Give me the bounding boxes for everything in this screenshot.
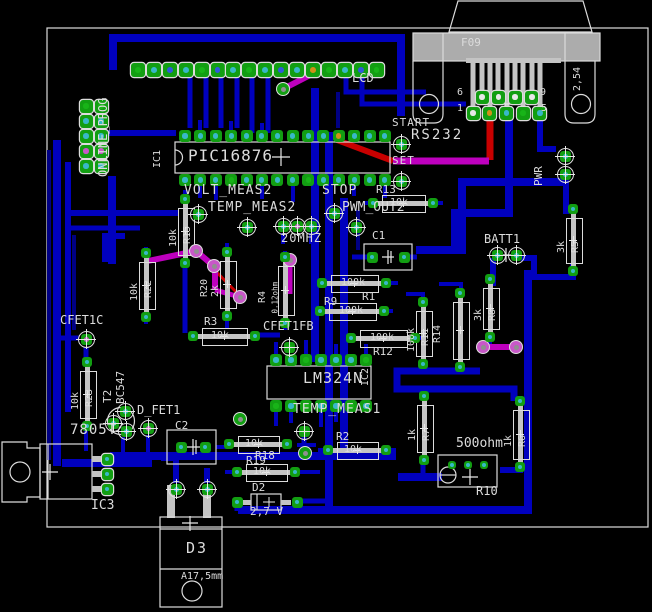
- resistor-R4-ref: R4: [258, 291, 268, 303]
- testpoint-BATT1-1[interactable]: [487, 245, 507, 265]
- R11-pad-1-center: [421, 300, 425, 304]
- R5-pad-1-center: [571, 207, 575, 211]
- pic-top-pad-3-center: [213, 133, 218, 138]
- lcd-header-pad-11[interactable]: [290, 63, 304, 77]
- lcd-header-pad-2-center: [151, 67, 157, 73]
- online-prog-col1-pad-5-center: [83, 163, 88, 168]
- resistor-R4-gfx: [285, 286, 286, 294]
- R12-pad-1[interactable]: [346, 333, 356, 343]
- R4-pad-1-center: [283, 255, 287, 259]
- resistor-R14-gfx: [453, 302, 470, 360]
- silkscreen-label-CFET1FB: CFET1FB: [263, 320, 314, 332]
- db9-bottom-row-pad-4-center: [520, 110, 525, 115]
- online-prog-col1-pad-4[interactable]: [80, 145, 93, 158]
- R2-pad-1[interactable]: [323, 445, 333, 455]
- via-hole: [303, 451, 308, 456]
- c1-pads-pad-2[interactable]: [399, 252, 410, 263]
- testpoint-D3-1[interactable]: [166, 479, 186, 499]
- db9-top-row-pad-4-center: [529, 94, 534, 99]
- resistor-R4-gfx: [278, 266, 295, 316]
- pic-top-pad-14[interactable]: [379, 130, 391, 142]
- R22-pad-1[interactable]: [141, 248, 151, 258]
- pic-top-pad-12-center: [352, 133, 357, 138]
- resistor-R9-ref: R9: [324, 296, 337, 307]
- pic-top-pad-3[interactable]: [210, 130, 222, 142]
- R15-pad-2-center: [183, 261, 187, 265]
- c1-pads-pad-2-center: [402, 255, 407, 260]
- R5-pad-1[interactable]: [568, 204, 578, 214]
- testpoint-D_FET1[interactable]: [138, 418, 158, 438]
- R18-pad-1[interactable]: [224, 439, 234, 449]
- resistor-R3-ref: R3: [204, 316, 217, 327]
- pic-bottom-pad-8[interactable]: [287, 174, 299, 186]
- lm324-top-pad-3[interactable]: [300, 354, 312, 366]
- via-8[interactable]: [234, 413, 246, 425]
- pic-top-pad-1-center: [182, 133, 187, 138]
- resistor-R4-value: 0.12ohm: [271, 282, 279, 314]
- resistor-R11-ref: R11: [421, 328, 431, 346]
- silkscreen-label-VOLT-MEAS2: VOLT_MEAS2: [184, 184, 272, 197]
- pic-bottom-pad-3-center: [213, 177, 218, 182]
- testpoint-TEMP_MEAS1[interactable]: [294, 421, 314, 441]
- R11-pad-2[interactable]: [418, 359, 428, 369]
- R19-pad-1-center: [235, 470, 239, 474]
- pic-top-pad-2-center: [198, 133, 203, 138]
- d2-pads-pad-1[interactable]: [232, 497, 243, 508]
- pic-bottom-pad-1-center: [182, 177, 187, 182]
- pic-top-pad-6-center: [259, 133, 264, 138]
- pic-top-pad-9-center: [306, 133, 311, 138]
- ic3-pads-pad-2-center: [105, 472, 110, 477]
- pic-top-pad-8-center: [290, 133, 295, 138]
- db9-top-row-pad-4[interactable]: [525, 91, 538, 104]
- pic-bottom-pad-8-center: [290, 177, 295, 182]
- R19-pad-1[interactable]: [232, 467, 242, 477]
- pcb-canvas[interactable]: 10kR1510kR222kR200.12ohmR410kR23100kR11R…: [0, 0, 652, 612]
- R22-pad-1-center: [144, 251, 148, 255]
- pic-top-pad-14-center: [382, 133, 387, 138]
- d2-pads-pad-2[interactable]: [292, 497, 303, 508]
- testpoint-TEMP_MEAS2[interactable]: [237, 217, 257, 237]
- R11-pad-1[interactable]: [418, 297, 428, 307]
- resistor-R7-value: 1k: [408, 429, 418, 441]
- R14-pad-2[interactable]: [455, 362, 465, 372]
- resistor-R8-ref: R8: [488, 309, 498, 321]
- pic-top-pad-10-center: [321, 133, 326, 138]
- db9-bottom-row-pad-2[interactable]: [483, 107, 496, 120]
- via-3[interactable]: [208, 260, 220, 272]
- lm324-top-pad-4[interactable]: [315, 354, 327, 366]
- silkscreen-label-STOP: STOP: [322, 184, 357, 197]
- lcd-header-pad-14-center: [342, 67, 348, 73]
- pic-bottom-pad-14-center: [382, 177, 387, 182]
- via-hole: [238, 417, 243, 422]
- c2-pads-pad-2[interactable]: [200, 442, 211, 453]
- silkscreen-label-F09: F09: [461, 37, 481, 48]
- online-prog-col1-pad-5[interactable]: [80, 160, 93, 173]
- db9-top-row-pad-3-center: [512, 94, 517, 99]
- R14-pad-2-center: [458, 365, 462, 369]
- db9-top-row-pad-1[interactable]: [476, 91, 489, 104]
- online-prog-col1-pad-1[interactable]: [80, 100, 93, 113]
- via-hole: [212, 264, 217, 269]
- R7-pad-1[interactable]: [419, 391, 429, 401]
- resistor-R8-value: 3k: [474, 309, 484, 321]
- resistor-R2-value: 10k: [344, 445, 362, 455]
- online-prog-col1-pad-3[interactable]: [80, 130, 93, 143]
- silkscreen-label-6: 6: [457, 88, 463, 98]
- pic-top-pad-11-center: [336, 133, 341, 138]
- testpoint-T2-1-gfx: [125, 401, 126, 421]
- r10-pads-pad-1[interactable]: [448, 461, 456, 469]
- silkscreen-label-BATT1: BATT1: [484, 233, 520, 245]
- resistor-R20-gfx: [227, 280, 228, 288]
- silkscreen-label-PWM-OUT2: PWM_OUT2: [342, 201, 405, 214]
- db9-bottom-row-pad-3[interactable]: [500, 107, 513, 120]
- R9-pad-2-center: [382, 309, 386, 313]
- silkscreen-label-C1: C1: [372, 230, 385, 241]
- silkscreen-label-PIC16876: PIC16876: [188, 148, 273, 164]
- ic3-pads-pad-3[interactable]: [102, 484, 113, 495]
- R22-pad-2-center: [144, 315, 148, 319]
- R6-pad-1[interactable]: [515, 396, 525, 406]
- testpoint-VOLT_MEAS2-gfx: [198, 204, 199, 224]
- lm324-top-pad-2-center: [288, 357, 293, 362]
- R7-pad-1-center: [422, 394, 426, 398]
- silkscreen-label-LM324N: LM324N: [303, 371, 363, 386]
- R15-pad-2[interactable]: [180, 258, 190, 268]
- db9-top-row-pad-2[interactable]: [492, 91, 505, 104]
- R18-pad-2[interactable]: [282, 439, 292, 449]
- lm324-top-pad-1-center: [273, 357, 278, 362]
- R2-pad-2-center: [384, 448, 388, 452]
- silkscreen-label-D3: D3: [186, 541, 208, 556]
- pic-bottom-pad-4-center: [229, 177, 234, 182]
- testpoint-PWR-2-gfx: [565, 164, 566, 184]
- testpoint-PWR-1-gfx: [565, 146, 566, 166]
- lm324-top-pad-5[interactable]: [330, 354, 342, 366]
- R5-pad-2[interactable]: [568, 266, 578, 276]
- resistor-R23-value: 10k: [71, 392, 81, 410]
- resistor-R7-ref: R7: [422, 429, 432, 441]
- R7-pad-2[interactable]: [419, 455, 429, 465]
- lcd-header-pad-13-center: [326, 67, 332, 73]
- silkscreen-label-7805T: 7805T: [70, 423, 117, 437]
- pic-top-pad-9[interactable]: [302, 130, 314, 142]
- R6-pad-2[interactable]: [515, 462, 525, 472]
- via-6[interactable]: [477, 341, 489, 353]
- lcd-header-pad-7-center: [230, 67, 236, 73]
- lcd-header-pad-9[interactable]: [258, 63, 272, 77]
- via-4[interactable]: [234, 291, 246, 303]
- pic-top-pad-7-center: [275, 133, 280, 138]
- pic-bottom-pad-10-center: [321, 177, 326, 182]
- via-hole: [514, 345, 519, 350]
- pic-bottom-pad-7[interactable]: [271, 174, 283, 186]
- lcd-header-pad-12[interactable]: [306, 63, 320, 77]
- via-hole: [481, 345, 486, 350]
- r10-pads-pad-1-center: [450, 463, 454, 467]
- resistor-R1-ref: R1: [362, 291, 375, 302]
- resistor-R1-value: 100k: [341, 278, 365, 288]
- pic-top-pad-6[interactable]: [256, 130, 268, 142]
- silkscreen-label-D-FET1: D_FET1: [137, 404, 180, 416]
- online-prog-col1-pad-2-center: [83, 118, 88, 123]
- R22-pad-2[interactable]: [141, 312, 151, 322]
- silkscreen-label-IC3: IC3: [91, 499, 114, 512]
- db9-top-row-pad-2-center: [496, 94, 501, 99]
- R13-pad-2-center: [431, 201, 435, 205]
- silkscreen-label-START: START: [392, 117, 430, 128]
- r10-pads-pad-3[interactable]: [480, 461, 488, 469]
- lcd-header-pad-1-center: [135, 67, 141, 73]
- c2-pads-pad-2-center: [203, 445, 208, 450]
- pic-top-pad-12[interactable]: [348, 130, 360, 142]
- pic-top-pad-8[interactable]: [287, 130, 299, 142]
- R8-pad-1[interactable]: [485, 274, 495, 284]
- testpoint-TEMP_MEAS1-gfx: [304, 421, 305, 441]
- via-7[interactable]: [510, 341, 522, 353]
- testpoint-T2-3-gfx: [126, 421, 127, 441]
- R11-pad-2-center: [421, 362, 425, 366]
- pic-bottom-pad-6-center: [259, 177, 264, 182]
- c2-pads-pad-1-center: [179, 445, 184, 450]
- R1-pad-2[interactable]: [381, 278, 391, 288]
- resistor-R20-gfx: [220, 261, 237, 309]
- silkscreen-label-IC1: IC1: [153, 150, 163, 168]
- silkscreen-label-T2: T2: [102, 390, 113, 403]
- resistor-R15-value: 10k: [169, 229, 179, 247]
- online-prog-col1-pad-1-center: [83, 103, 88, 108]
- lm324-top-pad-6-center: [348, 357, 353, 362]
- via-9[interactable]: [299, 447, 311, 459]
- R3-pad-2-center: [253, 334, 257, 338]
- lm324-bottom-pad-1[interactable]: [270, 400, 282, 412]
- lcd-header-pad-7[interactable]: [226, 63, 240, 77]
- R1-pad-1-center: [320, 281, 324, 285]
- pic-bottom-pad-13-center: [367, 177, 372, 182]
- lcd-header-pad-10[interactable]: [274, 63, 288, 77]
- testpoint-START[interactable]: [391, 134, 411, 154]
- lm324-top-pad-3-center: [303, 357, 308, 362]
- resistor-R14-gfx: [460, 326, 461, 334]
- d2-pads-pad-2-center: [295, 500, 300, 505]
- pic-top-pad-13[interactable]: [364, 130, 376, 142]
- online-prog-col1-pad-4-center: [83, 148, 88, 153]
- resistor-R5-value: 3k: [557, 241, 567, 253]
- resistor-R12-value: 100k: [370, 333, 394, 343]
- silkscreen-label-TEMP-MEAS2: TEMP_MEAS2: [208, 201, 296, 214]
- db9-bottom-row-pad-1[interactable]: [467, 107, 480, 120]
- lm324-top-pad-7[interactable]: [360, 354, 372, 366]
- R3-pad-1[interactable]: [188, 331, 198, 341]
- R2-pad-2[interactable]: [381, 445, 391, 455]
- pic-top-pad-13-center: [367, 133, 372, 138]
- silkscreen-label-PWR: PWR: [533, 166, 544, 186]
- lcd-header-pad-4[interactable]: [179, 63, 193, 77]
- pic-bottom-pad-2-center: [198, 177, 203, 182]
- lm324-top-pad-6[interactable]: [345, 354, 357, 366]
- via-hole: [281, 87, 286, 92]
- resistor-R3-value: 10k: [211, 331, 229, 341]
- testpoint-D_FET1-gfx: [148, 418, 149, 438]
- c2-pads-pad-1[interactable]: [176, 442, 187, 453]
- pic-top-pad-10[interactable]: [317, 130, 329, 142]
- R23-pad-1[interactable]: [82, 357, 92, 367]
- resistor-R6-value: 1k: [504, 435, 514, 447]
- testpoint-PWM_OUT2-gfx: [356, 217, 357, 237]
- testpoint-BATT1-1-gfx: [497, 245, 498, 265]
- r10-pads-pad-2[interactable]: [464, 461, 472, 469]
- testpoint-D3-2[interactable]: [197, 479, 217, 499]
- R20-pad-1-center: [225, 250, 229, 254]
- testpoint-D3-1-gfx: [176, 479, 177, 499]
- silkscreen-label-2-7-V: 2,7 V: [250, 506, 283, 517]
- silkscreen-label-RS232: RS232: [411, 128, 463, 142]
- r10-pads-pad-3-center: [482, 463, 486, 467]
- R4-pad-1[interactable]: [280, 252, 290, 262]
- lcd-header-pad-12-center: [310, 67, 316, 73]
- d2-pads-pad-1-center: [235, 500, 240, 505]
- c1-pads-pad-1-center: [370, 255, 375, 260]
- silkscreen-label-IC2: IC2: [361, 368, 371, 386]
- R9-pad-1-center: [318, 309, 322, 313]
- pic-top-pad-4-center: [229, 133, 234, 138]
- R14-pad-1-center: [458, 291, 462, 295]
- ic3-pads-pad-1-center: [105, 457, 110, 462]
- db9-top-row-pad-3[interactable]: [509, 91, 522, 104]
- R13-pad-2[interactable]: [428, 198, 438, 208]
- resistor-R13-ref: R13: [376, 184, 396, 195]
- ic3-pads-pad-2[interactable]: [102, 469, 113, 480]
- db9-bottom-row-pad-1-center: [470, 110, 475, 115]
- testpoint-STOP-gfx: [334, 203, 335, 223]
- R8-pad-1-center: [488, 277, 492, 281]
- lcd-header-pad-16-center: [374, 67, 380, 73]
- lcd-header-pad-2[interactable]: [147, 63, 161, 77]
- silkscreen-label-2-54: 2,54: [573, 67, 583, 91]
- db9-top-row-pad-1-center: [479, 94, 484, 99]
- resistor-R6-ref: R6: [518, 435, 528, 447]
- online-prog-col1-pad-3-center: [83, 133, 88, 138]
- R19-pad-2-center: [293, 470, 297, 474]
- lcd-header-pad-8[interactable]: [242, 63, 256, 77]
- lm324-top-pad-5-center: [333, 357, 338, 362]
- lcd-header-pad-5[interactable]: [195, 63, 209, 77]
- testpoint-PWM_OUT2[interactable]: [346, 217, 366, 237]
- lcd-header-pad-3-center: [167, 67, 173, 73]
- testpoint-STOP[interactable]: [324, 203, 344, 223]
- lcd-header-pad-1[interactable]: [131, 63, 145, 77]
- testpoint-CFET1FB[interactable]: [279, 337, 299, 357]
- online-prog-col1-pad-2[interactable]: [80, 115, 93, 128]
- pic-bottom-pad-13[interactable]: [364, 174, 376, 186]
- silkscreen-label-D2: D2: [252, 482, 265, 493]
- resistor-R22-value: 10k: [130, 283, 140, 301]
- lcd-header-pad-5-center: [199, 67, 205, 73]
- silkscreen-label-BC547: BC547: [115, 371, 126, 404]
- R20-pad-1[interactable]: [222, 247, 232, 257]
- pic-top-pad-4[interactable]: [225, 130, 237, 142]
- resistor-R15-ref: R15: [183, 226, 193, 244]
- resistor-R19-ref: R19: [246, 455, 266, 466]
- r10-pads-pad-2-center: [466, 463, 470, 467]
- pic-top-pad-5-center: [244, 133, 249, 138]
- pic-bottom-pad-9[interactable]: [302, 174, 314, 186]
- lcd-header-pad-4-center: [183, 67, 189, 73]
- r10-trimmer-outline[interactable]: [438, 455, 497, 487]
- lm324-bottom-pad-1-center: [273, 403, 278, 408]
- resistor-R2-ref: R2: [336, 431, 349, 442]
- silkscreen-label-ONLINE-PROG: ONLINE_PROG: [97, 98, 109, 177]
- pic-bottom-pad-12-center: [352, 177, 357, 182]
- db9-bottom-row-pad-4[interactable]: [517, 107, 530, 120]
- testpoint-PWR-1[interactable]: [555, 146, 575, 166]
- testpoint-PWR-2[interactable]: [555, 164, 575, 184]
- testpoint-SET-gfx: [401, 171, 402, 191]
- testpoint-VOLT_MEAS2[interactable]: [188, 204, 208, 224]
- R8-pad-2[interactable]: [485, 332, 495, 342]
- pic-top-pad-7[interactable]: [271, 130, 283, 142]
- testpoint-CFET1C-gfx: [86, 329, 87, 349]
- R1-pad-1[interactable]: [317, 278, 327, 288]
- pic-top-pad-5[interactable]: [241, 130, 253, 142]
- pic-top-pad-11[interactable]: [333, 130, 345, 142]
- testpoint-T2-3[interactable]: [116, 421, 136, 441]
- silkscreen-label-A17-5mm: A17,5mm: [181, 572, 223, 582]
- resistor-R12-ref: R12: [373, 346, 393, 357]
- pic-top-pad-2[interactable]: [194, 130, 206, 142]
- testpoint-BATT1-2[interactable]: [506, 245, 526, 265]
- resistor-R9-value: 100k: [339, 306, 363, 316]
- ic3-pads-pad-1[interactable]: [102, 454, 113, 465]
- via-2[interactable]: [190, 245, 202, 257]
- resistor-R22-ref: R22: [144, 280, 154, 298]
- pic-top-pad-1[interactable]: [179, 130, 191, 142]
- resistor-R11-value: 100k: [407, 328, 417, 352]
- lcd-header-pad-13[interactable]: [322, 63, 336, 77]
- R3-pad-2[interactable]: [250, 331, 260, 341]
- pic-bottom-pad-5-center: [244, 177, 249, 182]
- R9-pad-2[interactable]: [379, 306, 389, 316]
- R2-pad-1-center: [326, 448, 330, 452]
- silkscreen-label-R10: R10: [476, 485, 498, 497]
- lm324-top-pad-4-center: [318, 357, 323, 362]
- testpoint-TEMP_MEAS2-gfx: [247, 217, 248, 237]
- R19-pad-2[interactable]: [290, 467, 300, 477]
- R14-pad-1[interactable]: [455, 288, 465, 298]
- R20-pad-2[interactable]: [222, 311, 232, 321]
- silkscreen-label-CFET1C: CFET1C: [60, 314, 103, 326]
- testpoint-CFET1C[interactable]: [76, 329, 96, 349]
- R12-pad-1-center: [349, 336, 353, 340]
- resistor-R23-ref: R23: [85, 389, 95, 407]
- R6-pad-2-center: [518, 465, 522, 469]
- c1-pads-pad-1[interactable]: [367, 252, 378, 263]
- lcd-header-pad-6[interactable]: [211, 63, 225, 77]
- silkscreen-label-C2: C2: [175, 420, 188, 431]
- db9-bottom-row-pad-2-center: [487, 110, 492, 115]
- lcd-header-pad-14[interactable]: [338, 63, 352, 77]
- via-1[interactable]: [277, 83, 289, 95]
- resistor-R19-value: 10k: [253, 467, 271, 477]
- lcd-header-pad-3[interactable]: [163, 63, 177, 77]
- resistor-R14-ref: R14: [433, 325, 443, 343]
- resistor-R20-ref: R20: [200, 279, 210, 297]
- lcd-header-pad-6-center: [215, 67, 221, 73]
- R20-pad-2-center: [225, 314, 229, 318]
- lcd-header-pad-8-center: [246, 67, 252, 73]
